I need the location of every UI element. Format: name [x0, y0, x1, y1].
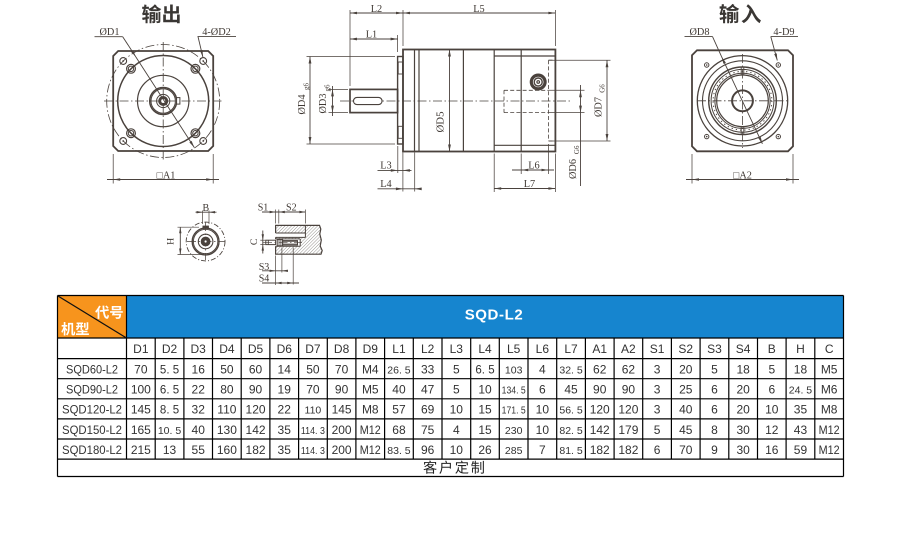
svg-text:171. 5: 171. 5	[502, 406, 526, 417]
svg-text:22: 22	[278, 403, 292, 417]
svg-text:L2: L2	[421, 342, 435, 356]
svg-text:D4: D4	[219, 342, 235, 356]
svg-text:70: 70	[134, 362, 148, 376]
svg-text:D1: D1	[133, 342, 149, 356]
svg-text:80: 80	[220, 383, 234, 397]
svg-text:S1: S1	[650, 342, 665, 356]
svg-text:45: 45	[564, 383, 578, 397]
svg-text:g6: g6	[323, 84, 331, 92]
svg-text:47: 47	[421, 383, 435, 397]
svg-text:L4: L4	[380, 179, 391, 190]
svg-text:4: 4	[539, 362, 546, 376]
svg-text:50: 50	[306, 362, 320, 376]
svg-text:165: 165	[131, 423, 151, 437]
svg-text:B: B	[202, 203, 209, 214]
svg-text:L1: L1	[366, 30, 377, 41]
svg-text:D9: D9	[363, 342, 379, 356]
svg-text:25: 25	[679, 383, 693, 397]
svg-text:62: 62	[593, 362, 607, 376]
svg-text:134. 5: 134. 5	[502, 386, 526, 397]
svg-text:M12: M12	[819, 443, 840, 457]
svg-text:4-D9: 4-D9	[773, 27, 794, 38]
svg-text:90: 90	[593, 383, 607, 397]
svg-text:ØD6: ØD6	[568, 159, 579, 179]
svg-text:14: 14	[278, 362, 292, 376]
svg-text:142: 142	[590, 423, 610, 437]
svg-text:L7: L7	[564, 342, 578, 356]
svg-text:110: 110	[305, 405, 322, 417]
svg-text:L2: L2	[371, 4, 382, 15]
svg-text:20: 20	[736, 403, 750, 417]
svg-text:5. 5: 5. 5	[160, 364, 179, 376]
svg-text:5: 5	[654, 423, 661, 437]
svg-text:40: 40	[679, 403, 693, 417]
svg-text:160: 160	[217, 443, 237, 457]
svg-text:L3: L3	[380, 160, 391, 171]
svg-text:45: 45	[679, 423, 693, 437]
svg-text:D6: D6	[277, 342, 293, 356]
svg-text:4-ØD2: 4-ØD2	[202, 27, 231, 38]
svg-text:55: 55	[192, 443, 206, 457]
svg-text:5: 5	[768, 362, 775, 376]
svg-text:16: 16	[192, 362, 206, 376]
svg-text:75: 75	[421, 423, 435, 437]
svg-text:22: 22	[192, 383, 206, 397]
svg-text:SQD150-L2: SQD150-L2	[62, 423, 122, 437]
svg-text:6: 6	[654, 443, 661, 457]
svg-text:32. 5: 32. 5	[559, 364, 583, 376]
svg-text:C: C	[249, 239, 260, 246]
svg-text:103: 103	[505, 364, 523, 376]
svg-text:40: 40	[192, 423, 206, 437]
svg-text:D7: D7	[305, 342, 321, 356]
svg-text:L5: L5	[507, 342, 521, 356]
svg-text:6: 6	[539, 383, 546, 397]
svg-text:SQD-L2: SQD-L2	[465, 306, 524, 323]
svg-text:10: 10	[765, 403, 779, 417]
svg-text:62: 62	[622, 362, 636, 376]
svg-text:90: 90	[622, 383, 636, 397]
svg-text:ØD4: ØD4	[297, 94, 308, 114]
svg-text:114. 3: 114. 3	[301, 446, 325, 457]
svg-text:S3: S3	[707, 342, 722, 356]
svg-text:30: 30	[736, 443, 750, 457]
svg-text:S4: S4	[259, 274, 270, 285]
svg-text:182: 182	[246, 443, 266, 457]
svg-text:5: 5	[453, 362, 460, 376]
svg-text:D2: D2	[162, 342, 178, 356]
svg-text:M12: M12	[360, 423, 381, 437]
svg-text:142: 142	[246, 423, 266, 437]
svg-text:200: 200	[332, 423, 352, 437]
svg-text:19: 19	[278, 383, 292, 397]
svg-text:SQD60-L2: SQD60-L2	[66, 362, 118, 376]
svg-text:10: 10	[478, 383, 492, 397]
svg-text:ØD7: ØD7	[594, 97, 605, 117]
svg-text:120: 120	[590, 403, 610, 417]
svg-text:SQD90-L2: SQD90-L2	[66, 383, 118, 397]
svg-text:230: 230	[505, 425, 523, 437]
svg-text:10: 10	[536, 403, 550, 417]
svg-text:10: 10	[536, 423, 550, 437]
svg-text:L5: L5	[473, 4, 484, 15]
svg-text:8: 8	[711, 423, 718, 437]
svg-text:30: 30	[736, 423, 750, 437]
svg-text:D8: D8	[334, 342, 350, 356]
svg-text:33: 33	[421, 362, 435, 376]
svg-text:13: 13	[163, 443, 177, 457]
svg-text:ØD1: ØD1	[99, 27, 119, 38]
svg-text:100: 100	[131, 383, 151, 397]
svg-text:32: 32	[192, 403, 206, 417]
svg-text:M8: M8	[362, 403, 379, 417]
svg-text:M8: M8	[821, 403, 838, 417]
svg-text:L6: L6	[528, 160, 539, 171]
svg-text:G6: G6	[599, 84, 607, 93]
svg-text:C: C	[825, 342, 834, 356]
svg-text:120: 120	[246, 403, 266, 417]
svg-text:179: 179	[618, 423, 638, 437]
svg-text:70: 70	[306, 383, 320, 397]
svg-text:D3: D3	[191, 342, 207, 356]
svg-text:215: 215	[131, 443, 151, 457]
svg-text:L1: L1	[392, 342, 406, 356]
svg-text:L3: L3	[450, 342, 464, 356]
svg-text:43: 43	[794, 423, 808, 437]
svg-text:A2: A2	[621, 342, 636, 356]
svg-text:200: 200	[332, 443, 352, 457]
svg-text:57: 57	[392, 403, 406, 417]
svg-text:35: 35	[278, 423, 292, 437]
svg-text:L4: L4	[478, 342, 492, 356]
svg-text:L6: L6	[536, 342, 550, 356]
svg-text:9: 9	[711, 443, 718, 457]
svg-text:3: 3	[654, 383, 661, 397]
svg-text:S2: S2	[678, 342, 693, 356]
svg-text:M12: M12	[819, 423, 840, 437]
svg-text:6: 6	[711, 403, 718, 417]
svg-text:M5: M5	[362, 383, 379, 397]
svg-text:3: 3	[654, 362, 661, 376]
svg-text:16: 16	[765, 443, 779, 457]
svg-text:26. 5: 26. 5	[387, 364, 411, 376]
svg-text:69: 69	[421, 403, 435, 417]
svg-text:18: 18	[794, 362, 808, 376]
svg-text:□A1: □A1	[157, 170, 176, 181]
svg-text:83. 5: 83. 5	[387, 445, 411, 457]
svg-text:L7: L7	[524, 179, 535, 190]
svg-text:68: 68	[392, 423, 406, 437]
svg-text:114. 3: 114. 3	[301, 426, 325, 437]
svg-text:SQD120-L2: SQD120-L2	[62, 403, 122, 417]
svg-text:□A2: □A2	[733, 170, 752, 181]
svg-text:26: 26	[478, 443, 492, 457]
svg-text:A1: A1	[592, 342, 607, 356]
svg-text:70: 70	[335, 362, 349, 376]
svg-text:20: 20	[679, 362, 693, 376]
svg-text:130: 130	[217, 423, 237, 437]
svg-text:G6: G6	[573, 145, 581, 154]
svg-text:H: H	[165, 238, 176, 245]
svg-text:20: 20	[736, 383, 750, 397]
svg-text:35: 35	[278, 443, 292, 457]
svg-text:60: 60	[249, 362, 263, 376]
svg-text:59: 59	[794, 443, 808, 457]
svg-text:145: 145	[332, 403, 352, 417]
svg-text:S4: S4	[736, 342, 751, 356]
svg-text:285: 285	[505, 445, 523, 457]
svg-text:15: 15	[478, 423, 492, 437]
svg-text:ØD5: ØD5	[435, 112, 447, 133]
svg-text:182: 182	[618, 443, 638, 457]
svg-text:96: 96	[421, 443, 435, 457]
svg-text:50: 50	[220, 362, 234, 376]
svg-text:6: 6	[711, 383, 718, 397]
svg-text:145: 145	[131, 403, 151, 417]
svg-text:S3: S3	[259, 262, 270, 273]
svg-text:g6: g6	[303, 83, 311, 91]
svg-text:12: 12	[765, 423, 779, 437]
svg-text:8. 5: 8. 5	[160, 405, 179, 417]
svg-text:40: 40	[392, 383, 406, 397]
svg-text:7: 7	[539, 443, 546, 457]
svg-text:56. 5: 56. 5	[559, 405, 583, 417]
svg-text:10: 10	[450, 403, 464, 417]
svg-text:S2: S2	[286, 202, 297, 213]
svg-text:70: 70	[679, 443, 693, 457]
svg-text:10: 10	[450, 443, 464, 457]
svg-text:90: 90	[249, 383, 263, 397]
svg-text:B: B	[768, 342, 776, 356]
svg-text:M5: M5	[821, 362, 838, 376]
svg-text:3: 3	[654, 403, 661, 417]
svg-text:15: 15	[478, 403, 492, 417]
svg-text:90: 90	[335, 383, 349, 397]
svg-text:182: 182	[590, 443, 610, 457]
svg-text:82. 5: 82. 5	[559, 425, 583, 437]
svg-text:M6: M6	[821, 383, 838, 397]
svg-text:120: 120	[618, 403, 638, 417]
svg-text:D5: D5	[248, 342, 264, 356]
svg-text:24. 5: 24. 5	[789, 385, 813, 397]
svg-text:4: 4	[453, 423, 460, 437]
svg-text:M12: M12	[360, 443, 381, 457]
svg-text:S1: S1	[258, 202, 269, 213]
svg-text:M4: M4	[362, 362, 379, 376]
svg-text:6: 6	[768, 383, 775, 397]
svg-text:ØD3: ØD3	[318, 93, 329, 113]
svg-text:6. 5: 6. 5	[160, 385, 179, 397]
svg-text:110: 110	[217, 403, 236, 417]
svg-text:81. 5: 81. 5	[559, 445, 583, 457]
svg-text:5: 5	[453, 383, 460, 397]
svg-text:ØD8: ØD8	[689, 27, 709, 38]
svg-text:18: 18	[736, 362, 750, 376]
svg-text:5: 5	[711, 362, 718, 376]
svg-text:10. 5: 10. 5	[158, 425, 182, 437]
svg-text:35: 35	[794, 403, 808, 417]
svg-text:H: H	[796, 342, 805, 356]
svg-text:SQD180-L2: SQD180-L2	[62, 443, 122, 457]
svg-text:6. 5: 6. 5	[475, 364, 494, 376]
